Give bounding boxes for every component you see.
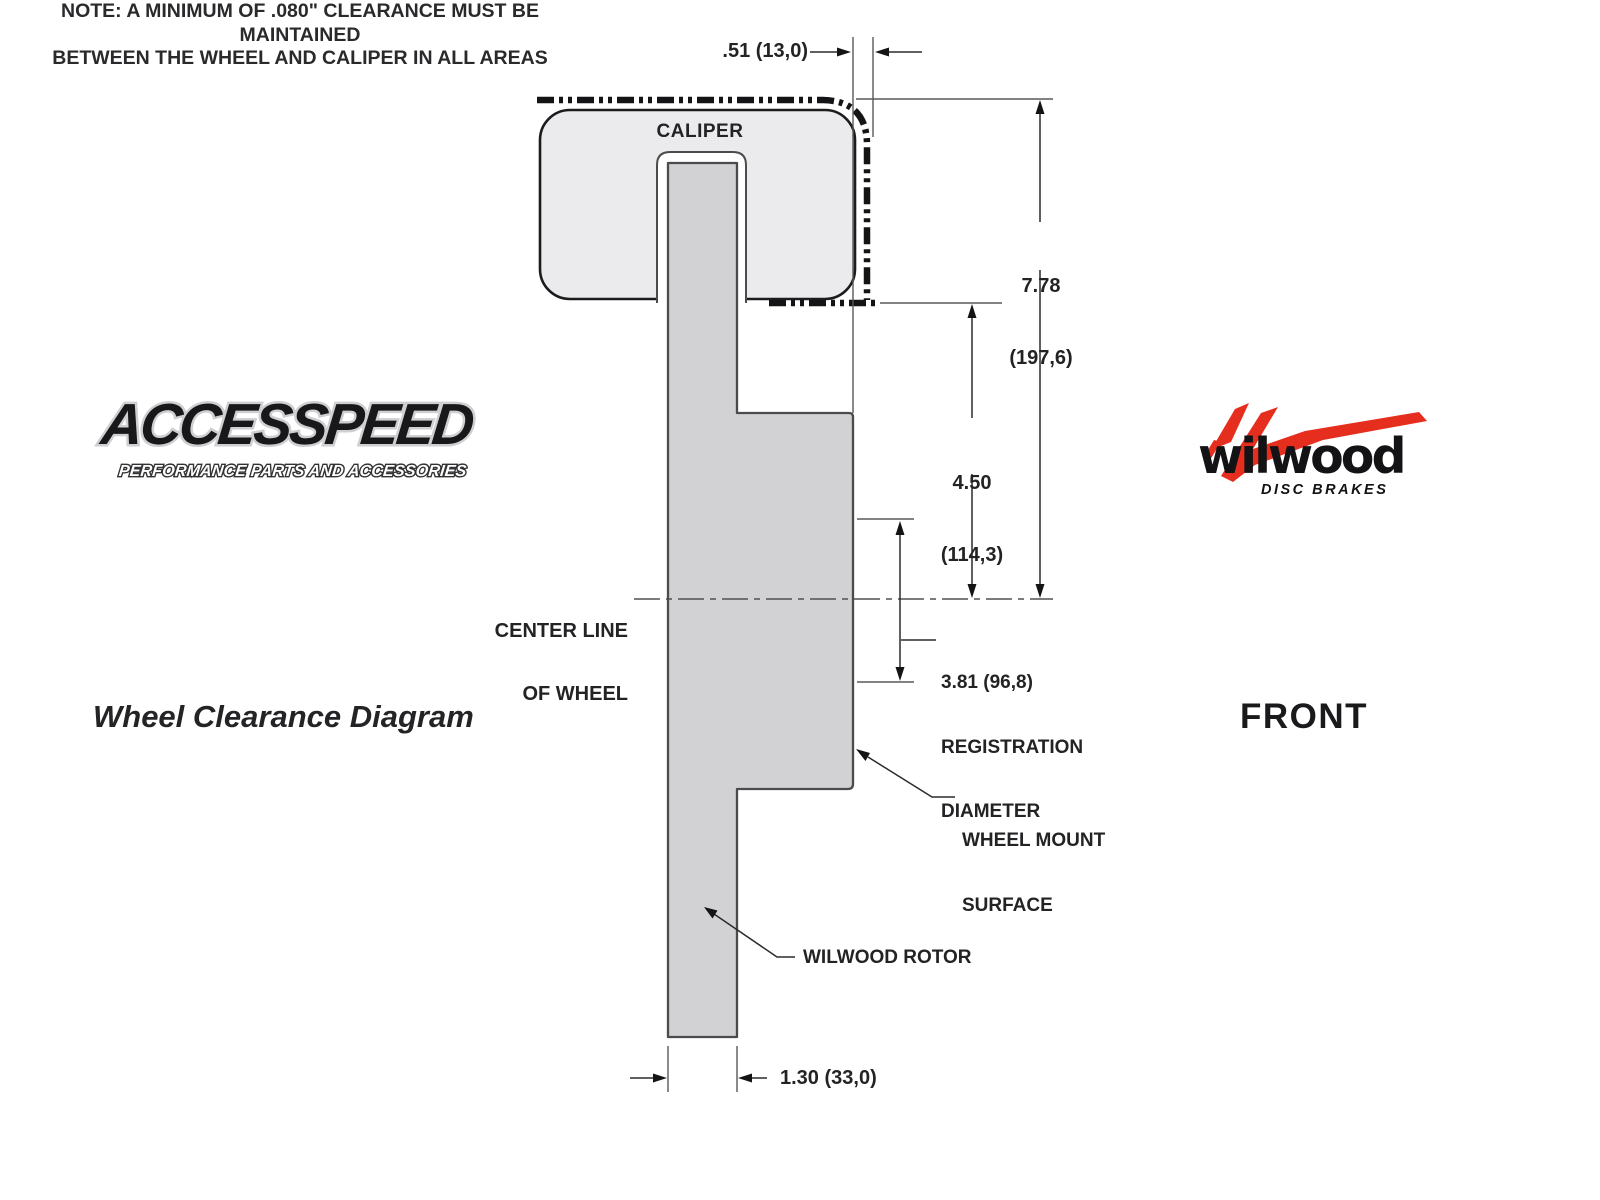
dimension-rotor-width: 1.30 (33,0): [780, 1067, 877, 1089]
caliper-label: CALIPER: [644, 121, 756, 143]
dimension-mount-to-centerline: 4.50 (114,3): [916, 423, 1028, 615]
wilwood-tagline: DISC BRAKES: [1261, 482, 1388, 498]
wilwood-rotor-label: WILWOOD ROTOR: [803, 947, 972, 968]
arrow-381-down: [896, 667, 905, 681]
center-line-label: CENTER LINE OF WHEEL: [448, 579, 628, 747]
arrow-381-up: [896, 521, 905, 535]
wheel-mount-line1: WHEEL MOUNT: [962, 830, 1105, 852]
dimension-wheel-to-centerline: 7.78 (197,6): [985, 226, 1097, 418]
arrow-778-down: [1036, 584, 1045, 598]
dimension-mount-to-centerline-in: 4.50: [916, 471, 1028, 495]
page-title: Wheel Clearance Diagram: [93, 699, 474, 735]
arrow-778-up: [1036, 100, 1045, 114]
dimension-wheel-to-centerline-mm: (197,6): [985, 346, 1097, 370]
dimension-caliper-clearance: .51 (13,0): [660, 40, 808, 62]
registration-word1: REGISTRATION: [941, 737, 1083, 759]
arrow-051-left: [875, 48, 889, 57]
dimension-mount-to-centerline-mm: (114,3): [916, 543, 1028, 567]
wilwood-logo: wilwood DISC BRAKES: [1193, 396, 1433, 504]
accesspeed-tagline: PERFORMANCE PARTS AND ACCESSORIES: [118, 462, 468, 480]
registration-value: 3.81 (96,8): [941, 672, 1083, 694]
center-line-label-line1: CENTER LINE: [448, 621, 628, 642]
wheel-mount-line2: SURFACE: [962, 895, 1105, 917]
wheel-mount-surface-label: WHEEL MOUNT SURFACE: [962, 787, 1105, 959]
arrow-450-up: [968, 304, 977, 318]
view-label-front: FRONT: [1240, 697, 1368, 737]
arrow-051-right: [837, 48, 851, 57]
dimension-wheel-to-centerline-in: 7.78: [985, 274, 1097, 298]
arrow-wheel-mount: [856, 749, 870, 761]
accesspeed-logo: ACCESSPEED PERFORMANCE PARTS AND ACCESSO…: [92, 384, 482, 492]
center-line-label-line2: OF WHEEL: [448, 684, 628, 705]
wilwood-wordmark: wilwood: [1198, 428, 1404, 485]
arrow-130-left: [738, 1074, 752, 1083]
arrow-130-right: [653, 1074, 667, 1083]
accesspeed-wordmark: ACCESSPEED: [96, 392, 476, 457]
technical-drawing: [0, 0, 1600, 1200]
wheel-clearance-diagram-page: CALIPER .51 (13,0) 7.78 (197,6) 4.50 (11…: [0, 0, 1600, 1200]
